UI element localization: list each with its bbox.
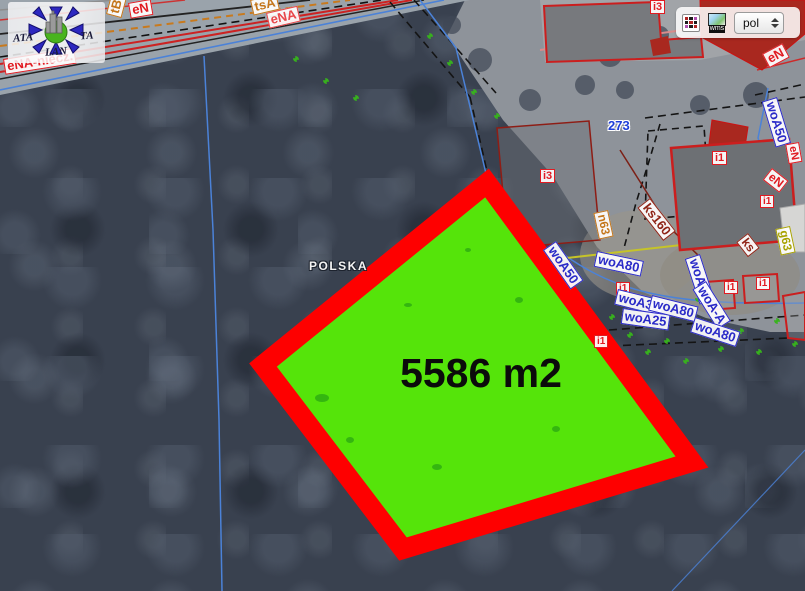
layers-button[interactable] [682, 14, 700, 32]
logo-text-left: ATA [13, 31, 34, 44]
logo-text-bottom: LAN [45, 45, 68, 59]
logo-building-icon [46, 11, 62, 33]
select-arrows-icon [771, 18, 779, 28]
language-select[interactable]: pol [734, 12, 784, 34]
wms-button[interactable]: wms [708, 13, 726, 33]
language-value: pol [743, 16, 759, 30]
brand-watermark: ATA TA LAN [8, 2, 105, 63]
map-canvas[interactable]: tBeNtsAeNAeNA-niecz.i3eNwoA50eNeN273i3n6… [0, 0, 805, 591]
parcel-area-label: 5586 m2 [368, 350, 594, 397]
logo-text-right: TA [80, 30, 94, 43]
layers-grid-icon [682, 14, 700, 32]
map-linework [0, 0, 805, 591]
wms-label: wms [709, 25, 725, 33]
map-toolbar: wms pol [676, 7, 800, 38]
